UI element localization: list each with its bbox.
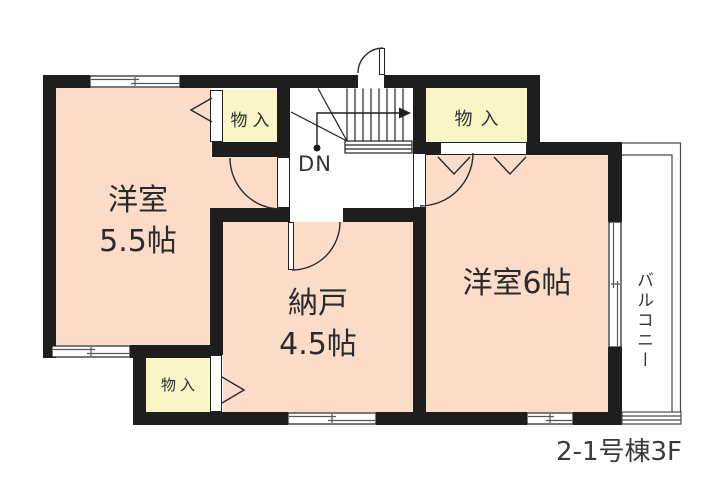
floor-plan: 洋室 5.5帖 納戸 4.5帖 洋室6帖 物入 物入 物入 DN バルコニー 2… — [0, 0, 701, 499]
balcony-label: バルコニー — [631, 238, 656, 403]
room-label-west55: 洋室 5.5帖 — [43, 180, 233, 262]
wall — [212, 142, 290, 157]
wall — [608, 347, 622, 412]
stairs-symbol — [291, 89, 412, 154]
stairs-dn-label: DN — [292, 152, 338, 176]
door-leaf-hall-to-west55 — [277, 157, 290, 208]
door-leaf-hall-to-west6 — [413, 153, 426, 208]
closet-top-right-opening — [440, 142, 527, 155]
door-leaf-closet-top-left — [210, 90, 223, 142]
closet-label-top-left: 物入 — [223, 106, 277, 131]
wall — [573, 412, 622, 425]
wall — [376, 412, 527, 425]
room-size: 4.5帖 — [279, 327, 357, 362]
room-name: 洋室6帖 — [462, 266, 571, 301]
stair-top-door-opening — [358, 75, 384, 88]
door-leaf-stair-top — [379, 48, 385, 75]
room-name: 洋室 — [108, 183, 168, 218]
wall — [180, 75, 358, 88]
stairs-start-dot — [314, 145, 321, 152]
room-label-west6: 洋室6帖 — [426, 263, 608, 304]
closet-label-bottom-left: 物入 — [146, 374, 210, 395]
door-leaf-storage-room — [288, 222, 294, 270]
plan-caption: 2-1号棟3F — [530, 431, 682, 468]
wall — [608, 142, 622, 222]
room-size: 5.5帖 — [99, 224, 177, 259]
wall — [413, 207, 426, 412]
wall — [43, 345, 52, 358]
wall — [384, 75, 540, 88]
door-leaf-closet-bottom-left — [210, 355, 222, 412]
stairs-direction-arrow — [314, 108, 412, 152]
closet-label-top-right: 物入 — [426, 105, 527, 131]
room-label-storage: 納戸 4.5帖 — [223, 283, 413, 365]
wall — [133, 412, 288, 425]
room-name: 納戸 — [288, 286, 348, 321]
